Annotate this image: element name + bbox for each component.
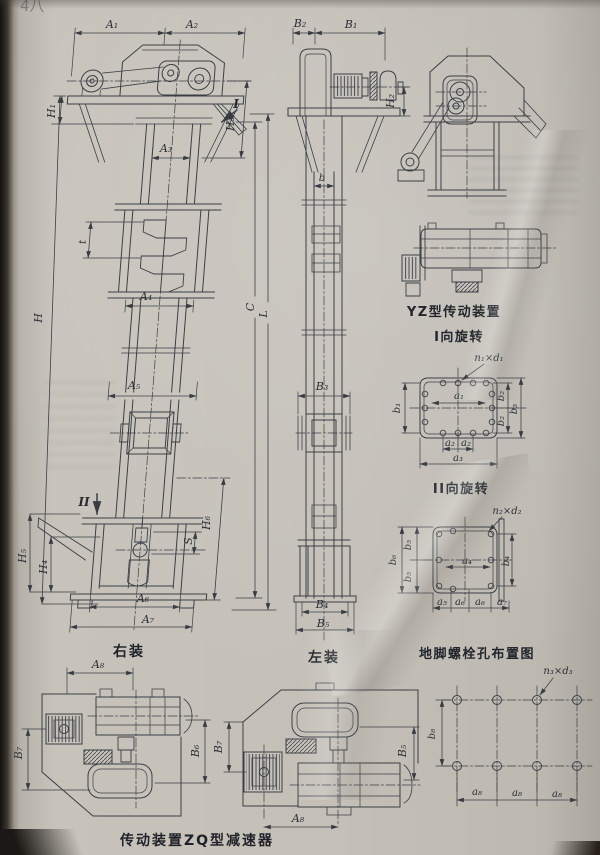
label-b6-left: B₆ — [189, 744, 202, 758]
dim-label-a1: A₁ — [105, 18, 118, 31]
dim-label-h6: H₆ — [200, 515, 213, 531]
caption-right-mount: 右装 — [112, 643, 145, 660]
label-a2a: a₂ — [445, 438, 455, 449]
dim-label-b5: B₅ — [316, 617, 330, 630]
label-b8: b₈ — [427, 729, 438, 739]
label-a5: a₅ — [437, 597, 447, 608]
height-dims-C-L — [232, 114, 276, 610]
dim-label-t: t — [78, 239, 89, 244]
dim-label-b3: B₃ — [315, 380, 329, 393]
label-b5-mid: B₅ — [396, 744, 409, 758]
label-b4: b₄ — [501, 556, 512, 566]
yz-drive-drawing — [402, 223, 556, 296]
dim-label-h1: H₁ — [45, 104, 58, 119]
handwritten-corner-mark: 4八 — [20, 0, 45, 16]
label-a8b: a₈ — [512, 788, 522, 799]
side-view-drawing — [288, 28, 410, 640]
dim-label-h: H — [32, 313, 45, 324]
section-marker-1: I — [232, 97, 239, 111]
label-a4: a₄ — [462, 556, 472, 567]
dim-label-c: C — [244, 302, 257, 311]
dim-label-a5: A₅ — [127, 379, 141, 392]
dim-label-b2: B₂ — [293, 17, 307, 30]
dim-label-b4: B₄ — [315, 598, 329, 611]
label-b3: b₃ — [509, 404, 520, 414]
label-n3d3: n₃×d₃ — [543, 666, 572, 677]
dim-label-h5: H₅ — [16, 548, 29, 564]
label-n2d2: n₂×d₂ — [492, 506, 521, 517]
dim-label-l: L — [257, 310, 270, 318]
label-b2b: b₂ — [496, 416, 507, 426]
label-a8-left: A₈ — [91, 658, 105, 671]
dim-label-b: b — [319, 173, 325, 184]
caption-anchor-bolts: 地脚螺栓孔布置图 — [419, 646, 535, 662]
engineering-drawing: A₁ A₂ H₁ H₃ I A₃ t A₄ A₅ H II H₅ H₄ S H₆… — [0, 0, 600, 855]
caption-yz-drive: YZ型传动装置 — [406, 304, 501, 320]
dim-label-h2: H₂ — [384, 94, 397, 109]
caption-rotation-2: II向旋转 — [433, 481, 489, 497]
section-marker-2: II — [77, 495, 90, 509]
dim-label-a6: A₆ — [136, 592, 150, 605]
label-b5a: b₅ — [403, 540, 414, 550]
label-a6a: a₆ — [455, 597, 465, 608]
caption-left-mount: 左装 — [307, 649, 340, 666]
head-detail-drawing — [398, 48, 546, 198]
label-a8a: a₈ — [472, 787, 482, 798]
dim-label-a3: A₃ — [159, 142, 172, 155]
caption-rotation-1: I向旋转 — [434, 329, 484, 345]
label-b7-left: B₇ — [12, 746, 25, 760]
rotation-1-layout — [402, 364, 526, 468]
label-b5b: b₅ — [403, 572, 414, 582]
label-n1d1: n₁×d₁ — [474, 353, 503, 364]
label-a7: a₇ — [497, 597, 507, 608]
front-view-left-dims — [30, 96, 100, 604]
label-a8c: a₈ — [552, 789, 562, 800]
dim-label-h4: H₄ — [37, 560, 50, 575]
label-b7-mid: B₇ — [212, 740, 225, 754]
label-a8-mid: A₈ — [291, 812, 305, 825]
zq-middle-drawing — [224, 683, 420, 827]
label-b6: b₆ — [388, 555, 399, 565]
dim-label-a2: A₂ — [185, 18, 198, 31]
dim-label-a7: A₇ — [141, 613, 155, 626]
dim-label-b1: B₁ — [344, 18, 358, 31]
label-a1: a₁ — [454, 391, 464, 402]
caption-zq-drive: 传动装置ZQ型减速器 — [119, 832, 274, 849]
label-b1: b₁ — [392, 403, 403, 413]
anchor-bolt-grid — [436, 678, 592, 806]
label-b2a: b₂ — [496, 391, 507, 401]
dim-label-s: S — [182, 537, 195, 545]
label-a6b: a₆ — [475, 597, 485, 608]
zq-left-drawing — [22, 668, 210, 816]
label-a3: a₃ — [453, 453, 463, 464]
dim-label-h3: H₃ — [224, 117, 237, 132]
photo-page: A₁ A₂ H₁ H₃ I A₃ t A₄ A₅ H II H₅ H₄ S H₆… — [0, 0, 600, 855]
dim-label-a4: A₄ — [139, 290, 152, 303]
label-a2b: a₂ — [461, 438, 471, 449]
